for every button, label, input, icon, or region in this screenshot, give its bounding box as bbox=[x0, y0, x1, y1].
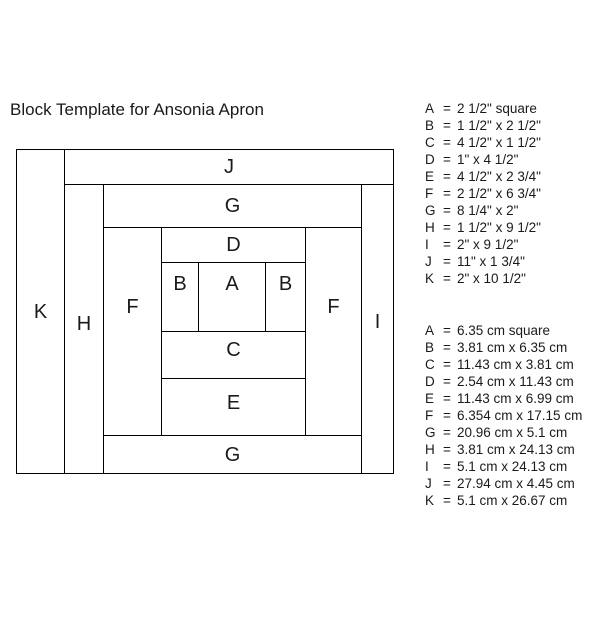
legend-key: C bbox=[425, 356, 439, 373]
piece-B-right: B bbox=[265, 262, 306, 332]
legend-key: K bbox=[425, 270, 439, 287]
legend-value: 20.96 cm x 5.1 cm bbox=[457, 424, 567, 441]
legend-row: F=2 1/2" x 6 3/4" bbox=[425, 185, 541, 202]
piece-B-left-label: B bbox=[173, 274, 186, 294]
legend-row: A=6.35 cm square bbox=[425, 322, 582, 339]
legend-value: 4 1/2" x 1 1/2" bbox=[457, 134, 541, 151]
piece-G-bottom-label: G bbox=[225, 445, 241, 465]
piece-F-right-label: F bbox=[327, 297, 339, 317]
legend-key: J bbox=[425, 475, 439, 492]
legend-row: E=4 1/2" x 2 3/4" bbox=[425, 168, 541, 185]
piece-B-left: B bbox=[161, 262, 199, 332]
page: Block Template for Ansonia Apron K J H G… bbox=[0, 0, 600, 627]
legend-row: A=2 1/2" square bbox=[425, 100, 541, 117]
equals-sign: = bbox=[439, 202, 455, 219]
equals-sign: = bbox=[439, 424, 455, 441]
legend-key: A bbox=[425, 100, 439, 117]
block-template-diagram: K J H G I F F D B A B C bbox=[16, 149, 394, 474]
equals-sign: = bbox=[439, 373, 455, 390]
equals-sign: = bbox=[439, 356, 455, 373]
legend-value: 2 1/2" square bbox=[457, 100, 537, 117]
legend-value: 1" x 4 1/2" bbox=[457, 151, 518, 168]
legend-value: 2" x 9 1/2" bbox=[457, 236, 518, 253]
legend-value: 1 1/2" x 2 1/2" bbox=[457, 117, 541, 134]
piece-F-left: F bbox=[103, 227, 162, 436]
equals-sign: = bbox=[439, 219, 455, 236]
equals-sign: = bbox=[439, 441, 455, 458]
equals-sign: = bbox=[439, 236, 455, 253]
piece-F-left-label: F bbox=[126, 297, 138, 317]
legend-row: C=4 1/2" x 1 1/2" bbox=[425, 134, 541, 151]
equals-sign: = bbox=[439, 185, 455, 202]
piece-D-label: D bbox=[226, 235, 240, 255]
piece-G-top: G bbox=[103, 184, 362, 228]
page-title: Block Template for Ansonia Apron bbox=[10, 100, 264, 120]
equals-sign: = bbox=[439, 339, 455, 356]
legend-value: 2" x 10 1/2" bbox=[457, 270, 526, 287]
legend-key: H bbox=[425, 441, 439, 458]
legend-row: G=20.96 cm x 5.1 cm bbox=[425, 424, 582, 441]
equals-sign: = bbox=[439, 151, 455, 168]
legend-row: D=2.54 cm x 11.43 cm bbox=[425, 373, 582, 390]
legend-key: K bbox=[425, 492, 439, 509]
piece-F-right: F bbox=[305, 227, 362, 436]
legend-key: B bbox=[425, 117, 439, 134]
legend-key: G bbox=[425, 202, 439, 219]
legend-row: K=5.1 cm x 26.67 cm bbox=[425, 492, 582, 509]
piece-A: A bbox=[198, 262, 266, 332]
legend-row: C=11.43 cm x 3.81 cm bbox=[425, 356, 582, 373]
equals-sign: = bbox=[439, 407, 455, 424]
legend-row: I=2" x 9 1/2" bbox=[425, 236, 541, 253]
legend-value: 1 1/2" x 9 1/2" bbox=[457, 219, 541, 236]
piece-G-top-label: G bbox=[225, 196, 241, 216]
legend-row: F=6.354 cm x 17.15 cm bbox=[425, 407, 582, 424]
piece-I-label: I bbox=[375, 312, 381, 332]
legend-row: D=1" x 4 1/2" bbox=[425, 151, 541, 168]
piece-J: J bbox=[64, 149, 394, 185]
legend-value: 6.35 cm square bbox=[457, 322, 550, 339]
legend-key: I bbox=[425, 236, 439, 253]
legend-key: H bbox=[425, 219, 439, 236]
legend-key: E bbox=[425, 168, 439, 185]
legend-row: J=27.94 cm x 4.45 cm bbox=[425, 475, 582, 492]
equals-sign: = bbox=[439, 253, 455, 270]
legend-value: 5.1 cm x 24.13 cm bbox=[457, 458, 567, 475]
legend-row: G=8 1/4" x 2" bbox=[425, 202, 541, 219]
piece-D: D bbox=[161, 227, 306, 263]
legend-key: D bbox=[425, 151, 439, 168]
equals-sign: = bbox=[439, 458, 455, 475]
equals-sign: = bbox=[439, 475, 455, 492]
legend-key: G bbox=[425, 424, 439, 441]
piece-K-label: K bbox=[34, 302, 47, 322]
equals-sign: = bbox=[439, 322, 455, 339]
legend-key: E bbox=[425, 390, 439, 407]
legend-row: E=11.43 cm x 6.99 cm bbox=[425, 390, 582, 407]
legend-key: J bbox=[425, 253, 439, 270]
legend-value: 6.354 cm x 17.15 cm bbox=[457, 407, 582, 424]
equals-sign: = bbox=[439, 117, 455, 134]
piece-J-label: J bbox=[224, 157, 234, 177]
piece-C: C bbox=[161, 331, 306, 379]
legend-value: 11.43 cm x 6.99 cm bbox=[457, 390, 574, 407]
legend-key: F bbox=[425, 185, 439, 202]
legend-value: 27.94 cm x 4.45 cm bbox=[457, 475, 575, 492]
piece-H-label: H bbox=[77, 314, 91, 334]
legend-row: B=3.81 cm x 6.35 cm bbox=[425, 339, 582, 356]
legend-key: F bbox=[425, 407, 439, 424]
piece-A-label: A bbox=[225, 274, 238, 294]
legend-cm: A=6.35 cm square B=3.81 cm x 6.35 cm C=1… bbox=[425, 322, 582, 509]
legend-value: 2 1/2" x 6 3/4" bbox=[457, 185, 541, 202]
legend-value: 2.54 cm x 11.43 cm bbox=[457, 373, 574, 390]
equals-sign: = bbox=[439, 270, 455, 287]
piece-K: K bbox=[16, 149, 65, 474]
legend-row: B=1 1/2" x 2 1/2" bbox=[425, 117, 541, 134]
legend-key: B bbox=[425, 339, 439, 356]
piece-I: I bbox=[361, 184, 394, 474]
legend-key: A bbox=[425, 322, 439, 339]
legend-value: 5.1 cm x 26.67 cm bbox=[457, 492, 567, 509]
piece-H: H bbox=[64, 184, 104, 474]
legend-row: H=3.81 cm x 24.13 cm bbox=[425, 441, 582, 458]
piece-C-label: C bbox=[226, 340, 240, 360]
legend-row: J=11" x 1 3/4" bbox=[425, 253, 541, 270]
legend-value: 3.81 cm x 24.13 cm bbox=[457, 441, 575, 458]
legend-row: K=2" x 10 1/2" bbox=[425, 270, 541, 287]
equals-sign: = bbox=[439, 168, 455, 185]
legend-row: H=1 1/2" x 9 1/2" bbox=[425, 219, 541, 236]
legend-key: I bbox=[425, 458, 439, 475]
legend-value: 11.43 cm x 3.81 cm bbox=[457, 356, 574, 373]
legend-key: D bbox=[425, 373, 439, 390]
legend-value: 11" x 1 3/4" bbox=[457, 253, 525, 270]
legend-inches: A=2 1/2" square B=1 1/2" x 2 1/2" C=4 1/… bbox=[425, 100, 541, 287]
legend-value: 4 1/2" x 2 3/4" bbox=[457, 168, 541, 185]
legend-value: 8 1/4" x 2" bbox=[457, 202, 518, 219]
equals-sign: = bbox=[439, 492, 455, 509]
piece-B-right-label: B bbox=[279, 274, 292, 294]
piece-G-bottom: G bbox=[103, 435, 362, 474]
equals-sign: = bbox=[439, 100, 455, 117]
legend-key: C bbox=[425, 134, 439, 151]
piece-E-label: E bbox=[227, 393, 240, 413]
legend-value: 3.81 cm x 6.35 cm bbox=[457, 339, 567, 356]
equals-sign: = bbox=[439, 134, 455, 151]
equals-sign: = bbox=[439, 390, 455, 407]
legend-row: I=5.1 cm x 24.13 cm bbox=[425, 458, 582, 475]
piece-E: E bbox=[161, 378, 306, 436]
